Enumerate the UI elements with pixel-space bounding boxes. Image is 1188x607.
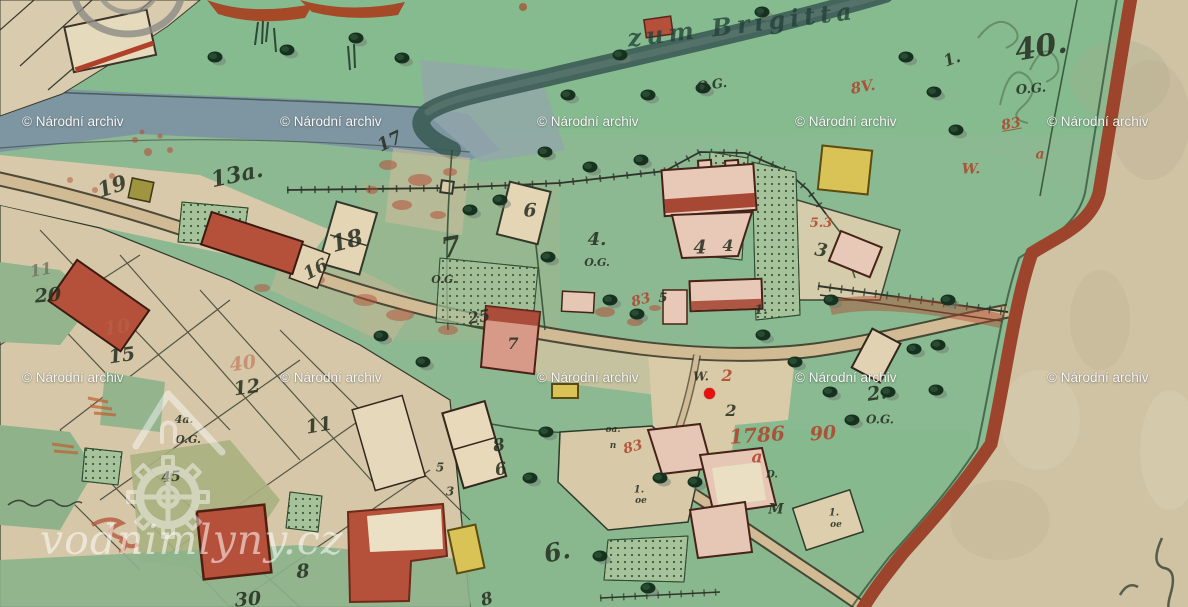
map-canvas[interactable]: [0, 0, 1188, 607]
yellow-building-large: [818, 146, 872, 195]
map-marker[interactable]: [704, 388, 715, 399]
path-node: [440, 180, 454, 194]
map-viewer[interactable]: zum BrigittaO.G.40.O.G.1913a.17181664.O.…: [0, 0, 1188, 607]
yellow-building-small: [552, 384, 578, 398]
